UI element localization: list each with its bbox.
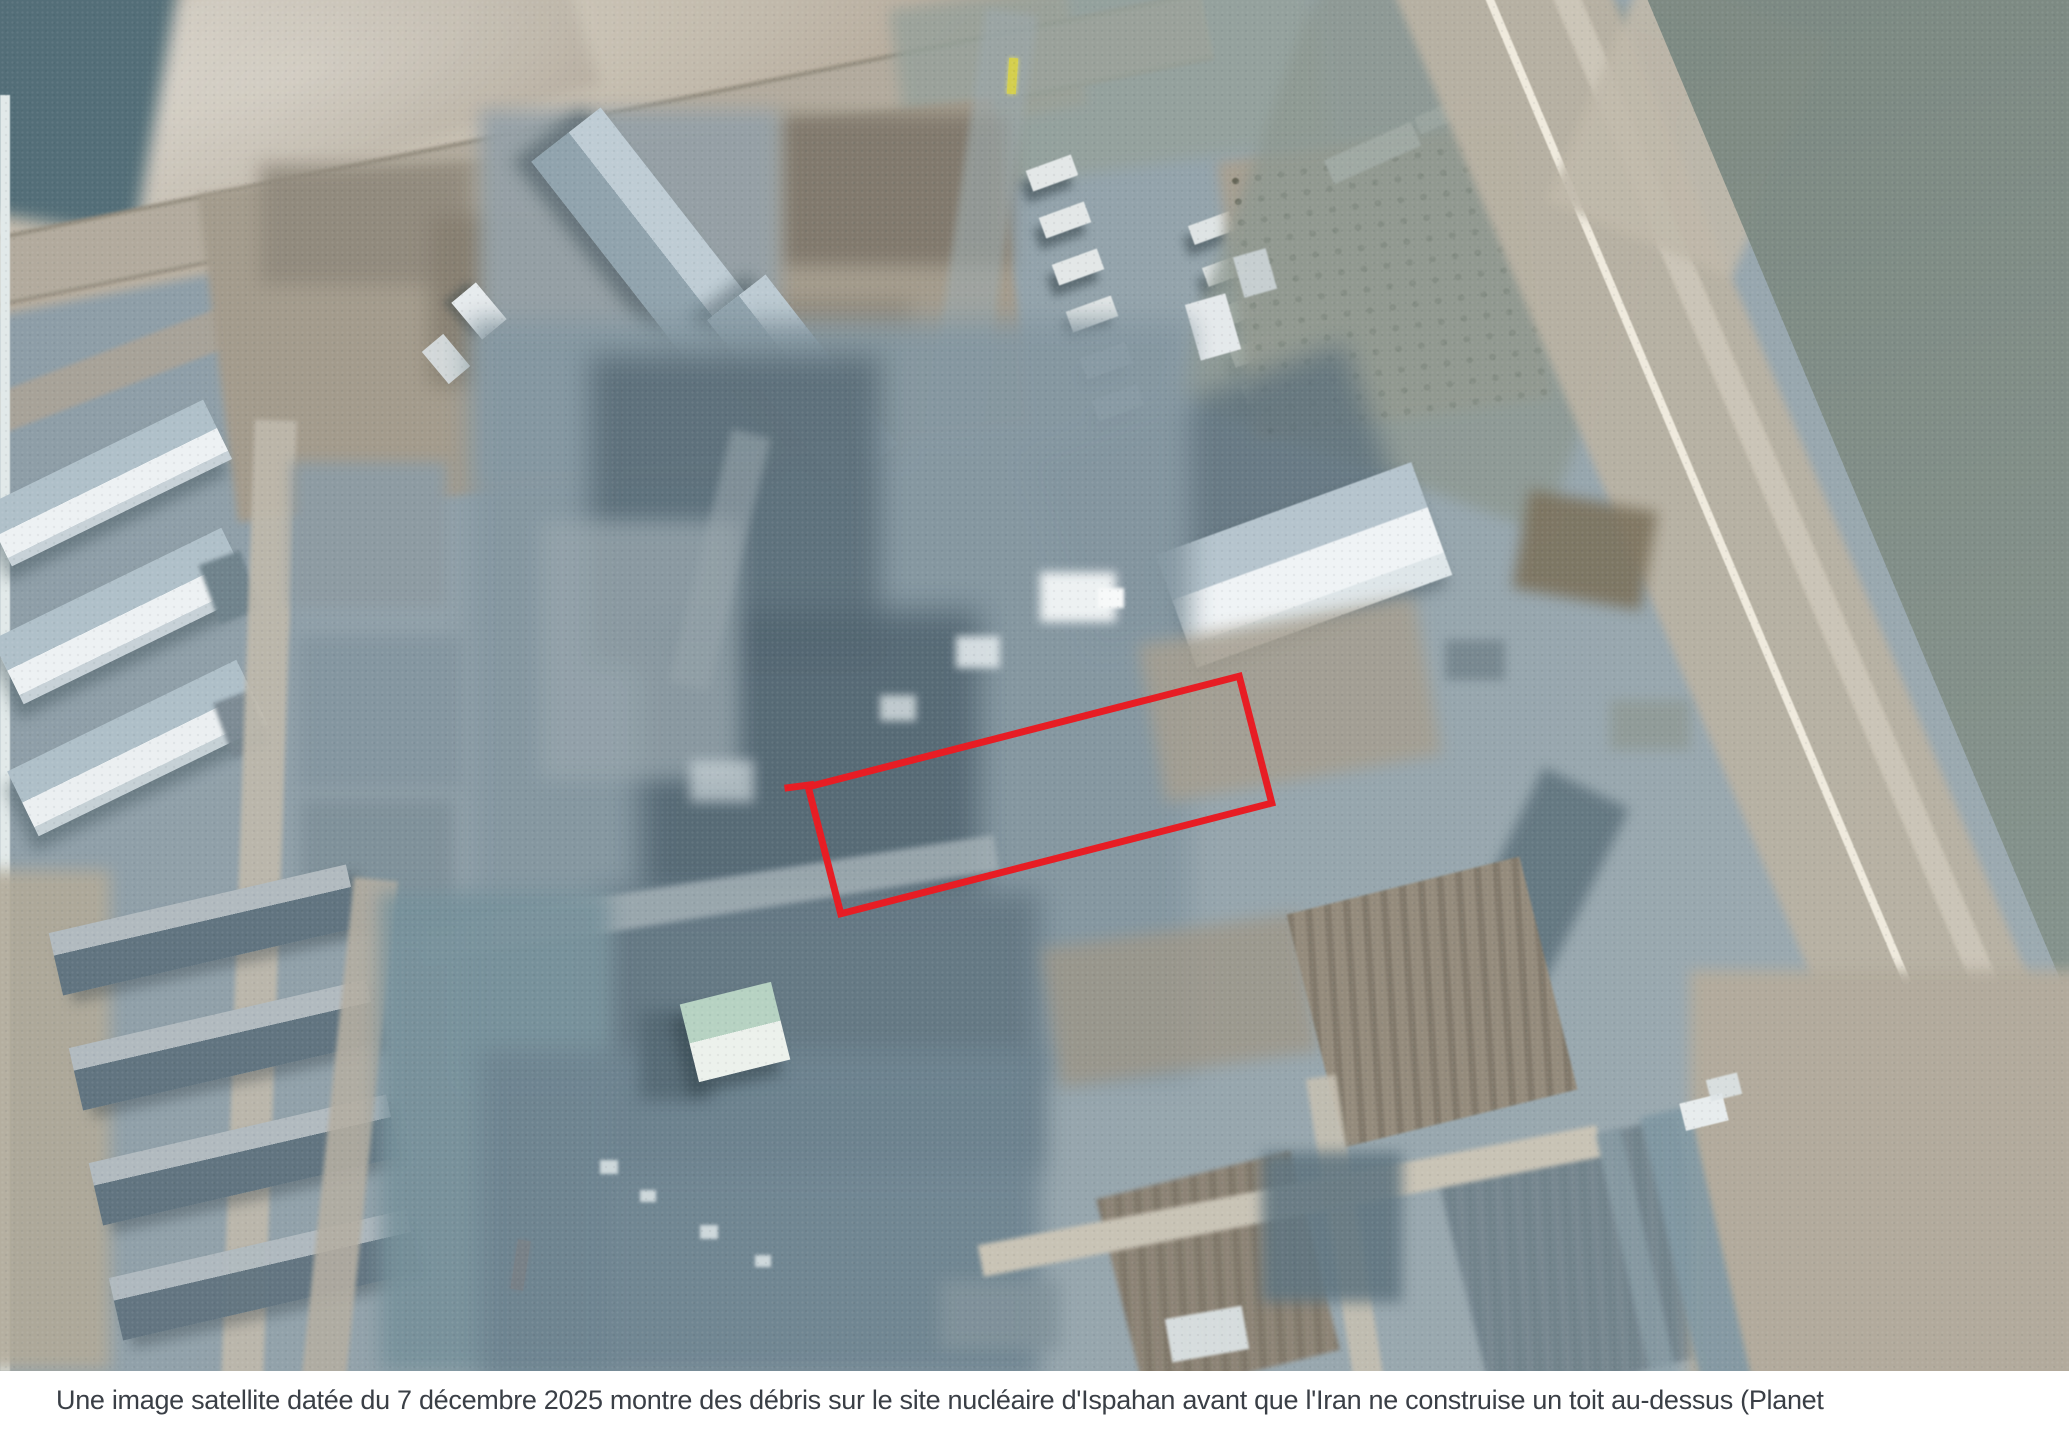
satellite-image <box>0 0 2069 1371</box>
image-caption-text: Une image satellite datée du 7 décembre … <box>56 1385 1824 1416</box>
image-caption-bar: Une image satellite datée du 7 décembre … <box>0 1371 2069 1430</box>
terrain-layer <box>0 0 2069 1371</box>
article-image-block: Une image satellite datée du 7 décembre … <box>0 0 2069 1430</box>
film-grain-overlay <box>0 0 2069 1371</box>
